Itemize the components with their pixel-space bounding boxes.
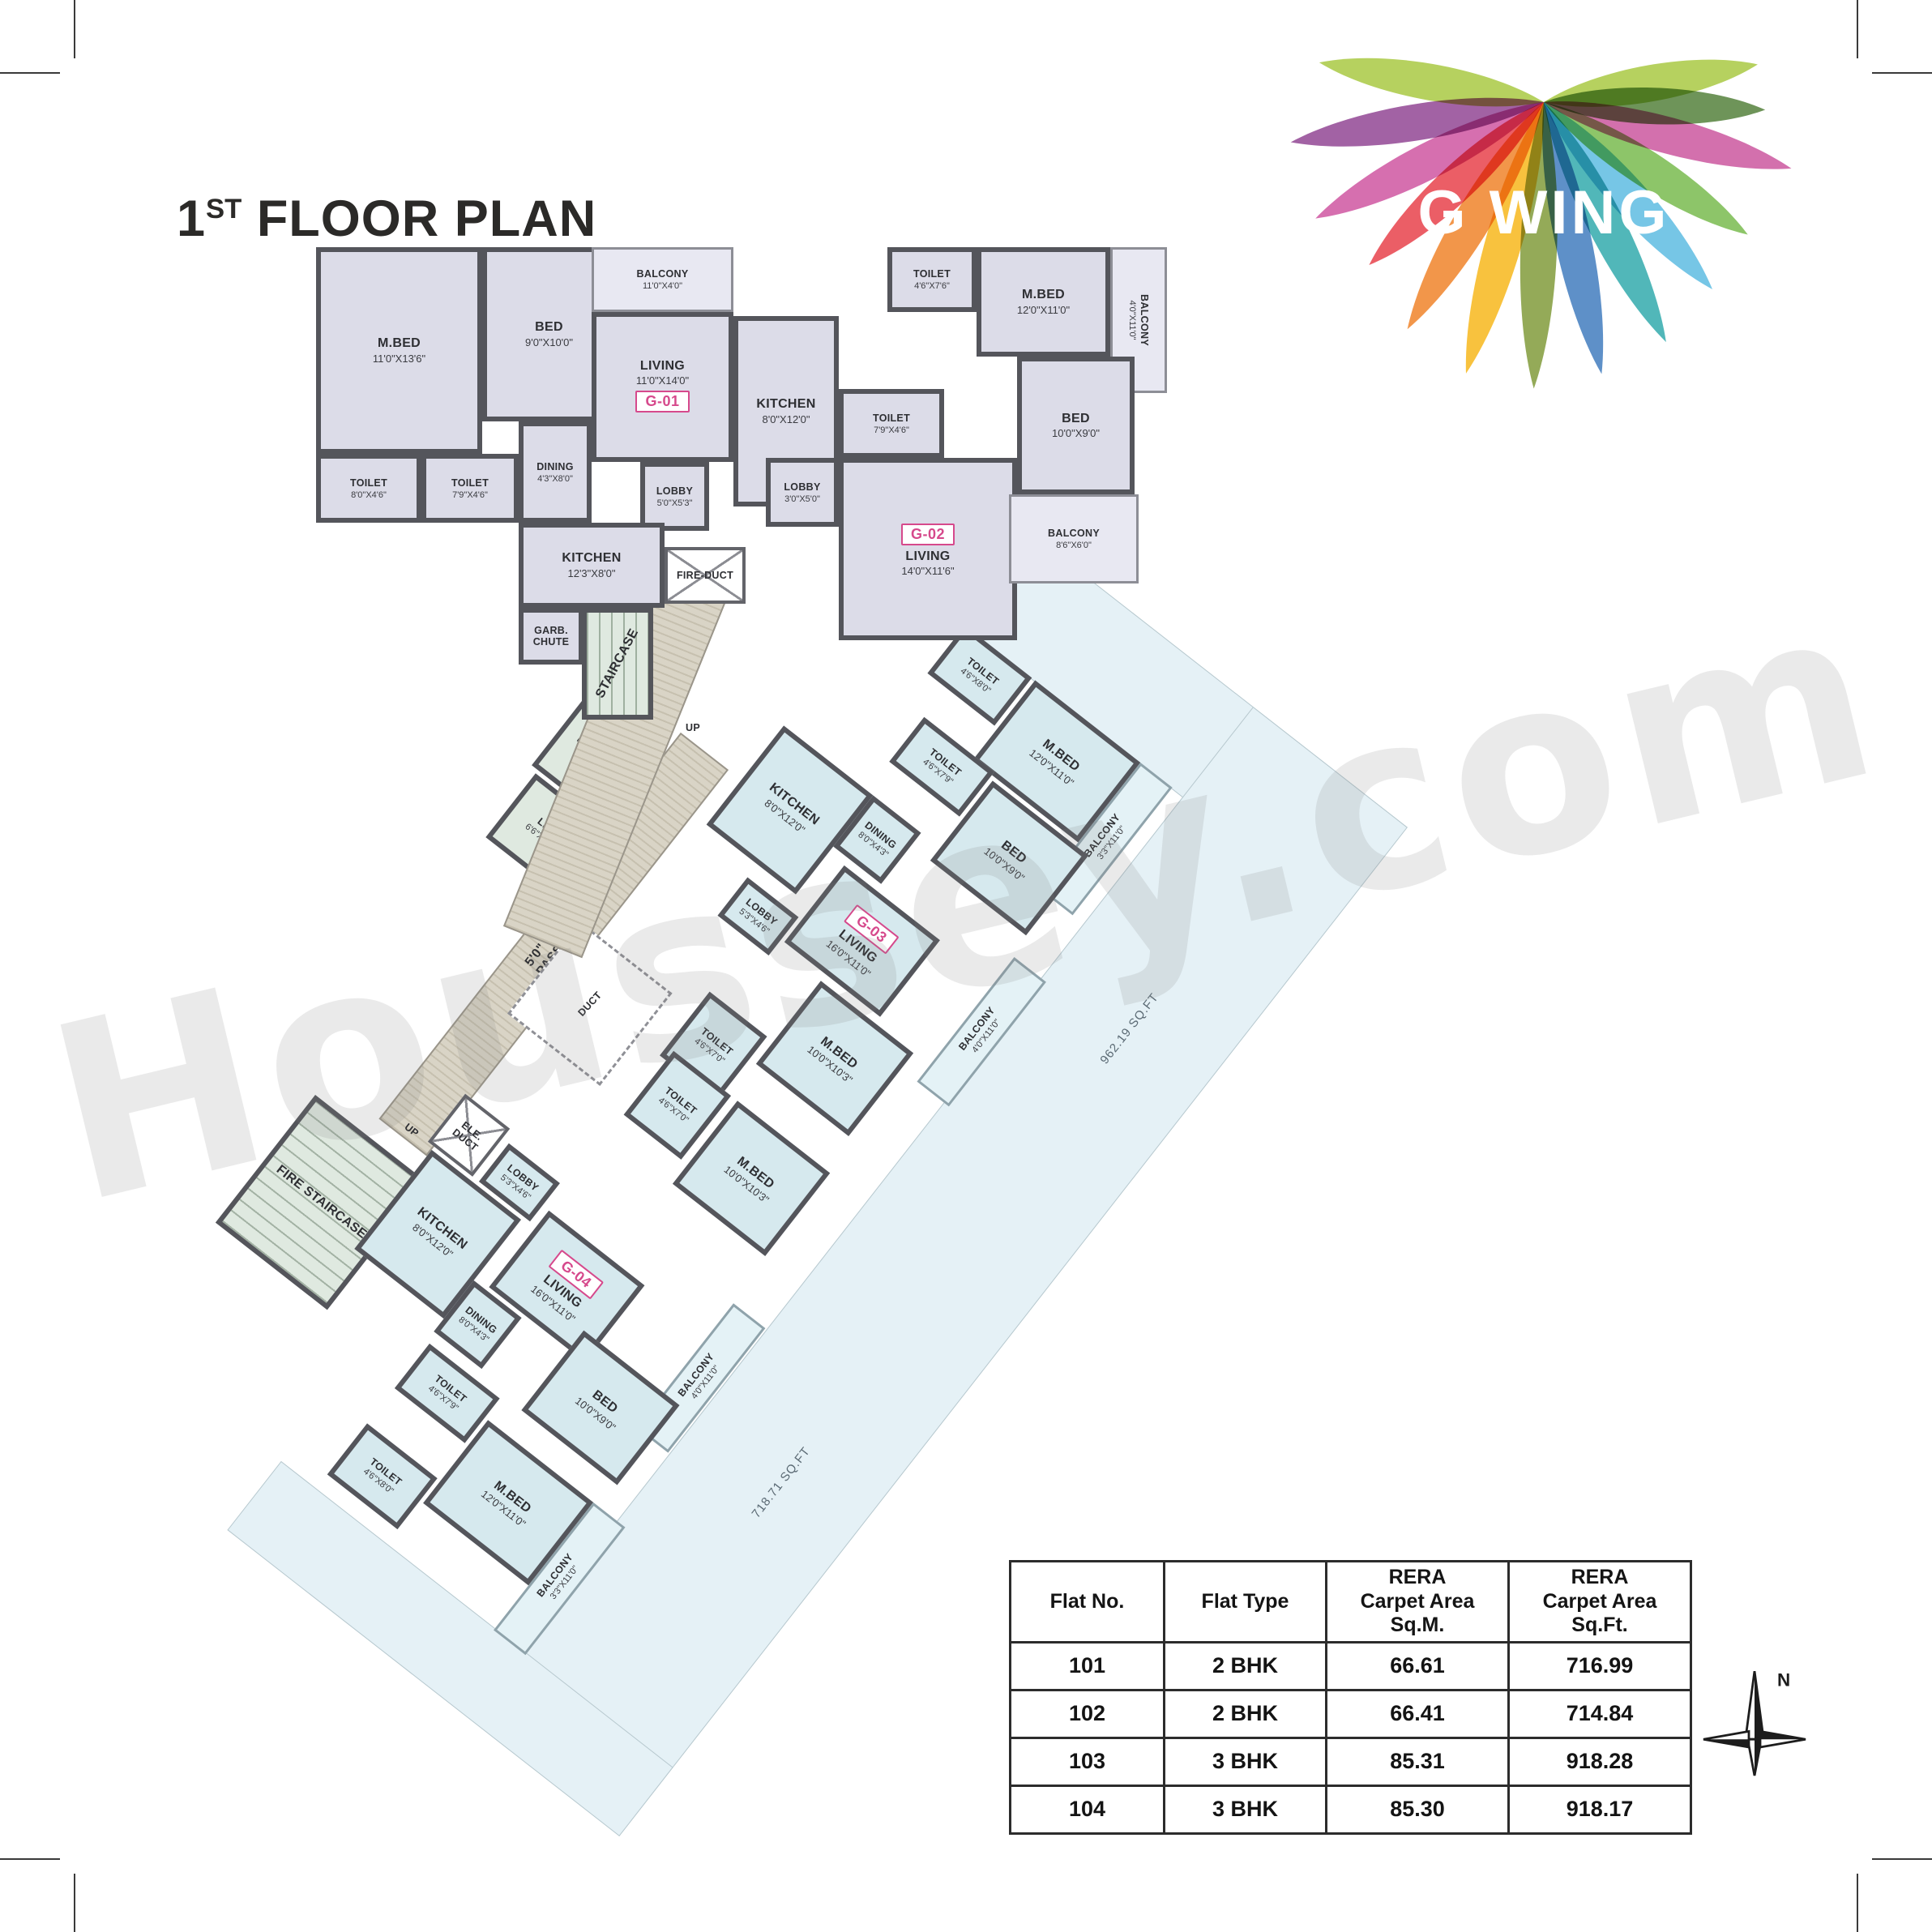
room-dimensions: 3'0"X5'0" xyxy=(784,494,820,504)
room-name: KITCHEN xyxy=(562,551,621,566)
table-row: 1043 BHK85.30918.17 xyxy=(1011,1785,1691,1833)
room-name: M.BED xyxy=(378,336,421,351)
page-title: 1ST FLOOR PLAN xyxy=(177,190,596,248)
table-cell: 85.30 xyxy=(1327,1785,1509,1833)
room-name: TOILET xyxy=(873,412,910,424)
room-name: FIRE-DUCT xyxy=(677,570,733,581)
room-dimensions: 12'0"X11'0" xyxy=(1017,304,1070,316)
room-name: BED xyxy=(535,320,563,335)
room-dimensions: 4'0"X11'0" xyxy=(1127,300,1137,340)
room-name: UP xyxy=(686,722,700,733)
crop-mark xyxy=(0,1858,60,1860)
room-dimensions: 9'0"X10'0" xyxy=(525,336,573,348)
g01-mbed: M.BED11'0"X13'6" xyxy=(316,247,482,454)
floor-plan-page: 1ST FLOOR PLAN G WING 5'0" WIDE PASSAGEF… xyxy=(0,0,1932,1932)
room-name: LOBBY xyxy=(784,481,820,493)
unit-badge: G-02 xyxy=(901,524,955,545)
core-staircase: STAIRCASE xyxy=(582,608,653,720)
room-name: BALCONY xyxy=(1139,294,1150,346)
crop-mark xyxy=(74,1874,75,1932)
table-cell: 2 BHK xyxy=(1165,1690,1327,1738)
room-name: BED xyxy=(1062,412,1090,426)
room-dimensions: 4'6"X7'6" xyxy=(914,281,950,291)
title-number: 1 xyxy=(177,190,206,247)
g02-toilet-2: TOILET7'9"X4'6" xyxy=(839,389,944,458)
table-cell: 101 xyxy=(1011,1642,1165,1690)
g02-lobby: LOBBY3'0"X5'0" xyxy=(766,458,839,527)
column-header: RERA Carpet Area Sq.M. xyxy=(1327,1562,1509,1643)
table-cell: 714.84 xyxy=(1509,1690,1691,1738)
core-garb-chute: GARB. CHUTE xyxy=(519,608,583,665)
room-name: STAIRCASE xyxy=(593,626,642,700)
crop-mark xyxy=(1872,72,1932,74)
room-dimensions: 11'0"X14'0" xyxy=(636,374,689,387)
room-name: M.BED xyxy=(1022,288,1065,302)
table-cell: 918.28 xyxy=(1509,1738,1691,1785)
room-name: TOILET xyxy=(913,268,951,280)
table-cell: 103 xyxy=(1011,1738,1165,1785)
g02-bed: BED10'0"X9'0" xyxy=(1017,357,1135,494)
column-header: RERA Carpet Area Sq.Ft. xyxy=(1509,1562,1691,1643)
g02-toilet-1: TOILET4'6"X7'6" xyxy=(887,247,977,312)
room-dimensions: 11'0"X13'6" xyxy=(373,353,425,365)
g01-lobby: LOBBY5'0"X5'3" xyxy=(640,462,709,531)
g01-kitchen: KITCHEN12'3"X8'0" xyxy=(519,523,665,608)
room-name: LIVING xyxy=(640,359,685,374)
room-dimensions: 10'0"X9'0" xyxy=(1052,427,1100,439)
room-name: DINING xyxy=(536,461,574,472)
table-row: 1012 BHK66.61716.99 xyxy=(1011,1642,1691,1690)
g02-living: G-02LIVING14'0"X11'6" xyxy=(839,458,1017,640)
title-text: FLOOR PLAN xyxy=(241,190,596,247)
room-name: LIVING xyxy=(905,549,950,564)
room-name: BALCONY xyxy=(1048,528,1100,539)
table-cell: 716.99 xyxy=(1509,1642,1691,1690)
table-header-row: Flat No.Flat TypeRERA Carpet Area Sq.M.R… xyxy=(1011,1562,1691,1643)
room-dimensions: 14'0"X11'6" xyxy=(901,565,954,577)
table-cell: 102 xyxy=(1011,1690,1165,1738)
column-header: Flat No. xyxy=(1011,1562,1165,1643)
g02-balcony: BALCONY8'6"X6'0" xyxy=(1009,494,1139,583)
room-name: TOILET xyxy=(451,477,489,489)
room-dimensions: 8'0"X12'0" xyxy=(762,413,810,425)
room-name: LOBBY xyxy=(656,485,693,497)
column-header: Flat Type xyxy=(1165,1562,1327,1643)
crop-mark xyxy=(1857,1874,1858,1932)
wing-label: G WING xyxy=(1417,178,1669,247)
table-cell: 85.31 xyxy=(1327,1738,1509,1785)
room-dimensions: 8'6"X6'0" xyxy=(1056,541,1092,550)
flat-area-table: Flat No.Flat TypeRERA Carpet Area Sq.M.R… xyxy=(1009,1560,1692,1835)
room-dimensions: 12'3"X8'0" xyxy=(567,567,615,579)
table-cell: 66.61 xyxy=(1327,1642,1509,1690)
table-cell: 2 BHK xyxy=(1165,1642,1327,1690)
g01-balcony: BALCONY11'0"X4'0" xyxy=(592,247,733,312)
g02-mbed: M.BED12'0"X11'0" xyxy=(977,247,1110,357)
compass-rose: N xyxy=(1698,1668,1811,1781)
core-up-1: UP xyxy=(669,717,717,738)
room-name: GARB. CHUTE xyxy=(533,625,570,648)
room-dimensions: 4'3"X8'0" xyxy=(537,474,573,484)
crop-mark xyxy=(0,72,60,74)
table-cell: 104 xyxy=(1011,1785,1165,1833)
room-dimensions: 5'0"X5'3" xyxy=(657,498,693,508)
title-ordinal: ST xyxy=(206,194,241,224)
g01-dining: DINING4'3"X8'0" xyxy=(519,421,592,523)
room-dimensions: 7'9"X4'6" xyxy=(452,490,488,500)
g01-toilet-1: TOILET8'0"X4'6" xyxy=(316,454,421,523)
compass-north-label: N xyxy=(1777,1669,1790,1690)
table-cell: 66.41 xyxy=(1327,1690,1509,1738)
table-row: 1022 BHK66.41714.84 xyxy=(1011,1690,1691,1738)
crop-mark xyxy=(1872,1858,1932,1860)
room-name: BALCONY xyxy=(637,268,689,280)
g01-toilet-2: TOILET7'9"X4'6" xyxy=(421,454,519,523)
table-row: 1033 BHK85.31918.28 xyxy=(1011,1738,1691,1785)
room-name: TOILET xyxy=(350,477,387,489)
room-name: KITCHEN xyxy=(756,397,815,412)
core-fire-duct: FIRE-DUCT xyxy=(665,547,746,604)
room-dimensions: 11'0"X4'0" xyxy=(643,281,682,291)
crop-mark xyxy=(74,0,75,58)
table-cell: 3 BHK xyxy=(1165,1738,1327,1785)
table-cell: 918.17 xyxy=(1509,1785,1691,1833)
g-wing-logo: G WING xyxy=(1228,32,1860,405)
room-dimensions: 8'0"X4'6" xyxy=(351,490,387,500)
table-cell: 3 BHK xyxy=(1165,1785,1327,1833)
crop-mark xyxy=(1857,0,1858,58)
unit-badge: G-01 xyxy=(635,391,689,412)
room-dimensions: 7'9"X4'6" xyxy=(874,425,909,435)
g01-living: LIVING11'0"X14'0"G-01 xyxy=(592,312,733,462)
